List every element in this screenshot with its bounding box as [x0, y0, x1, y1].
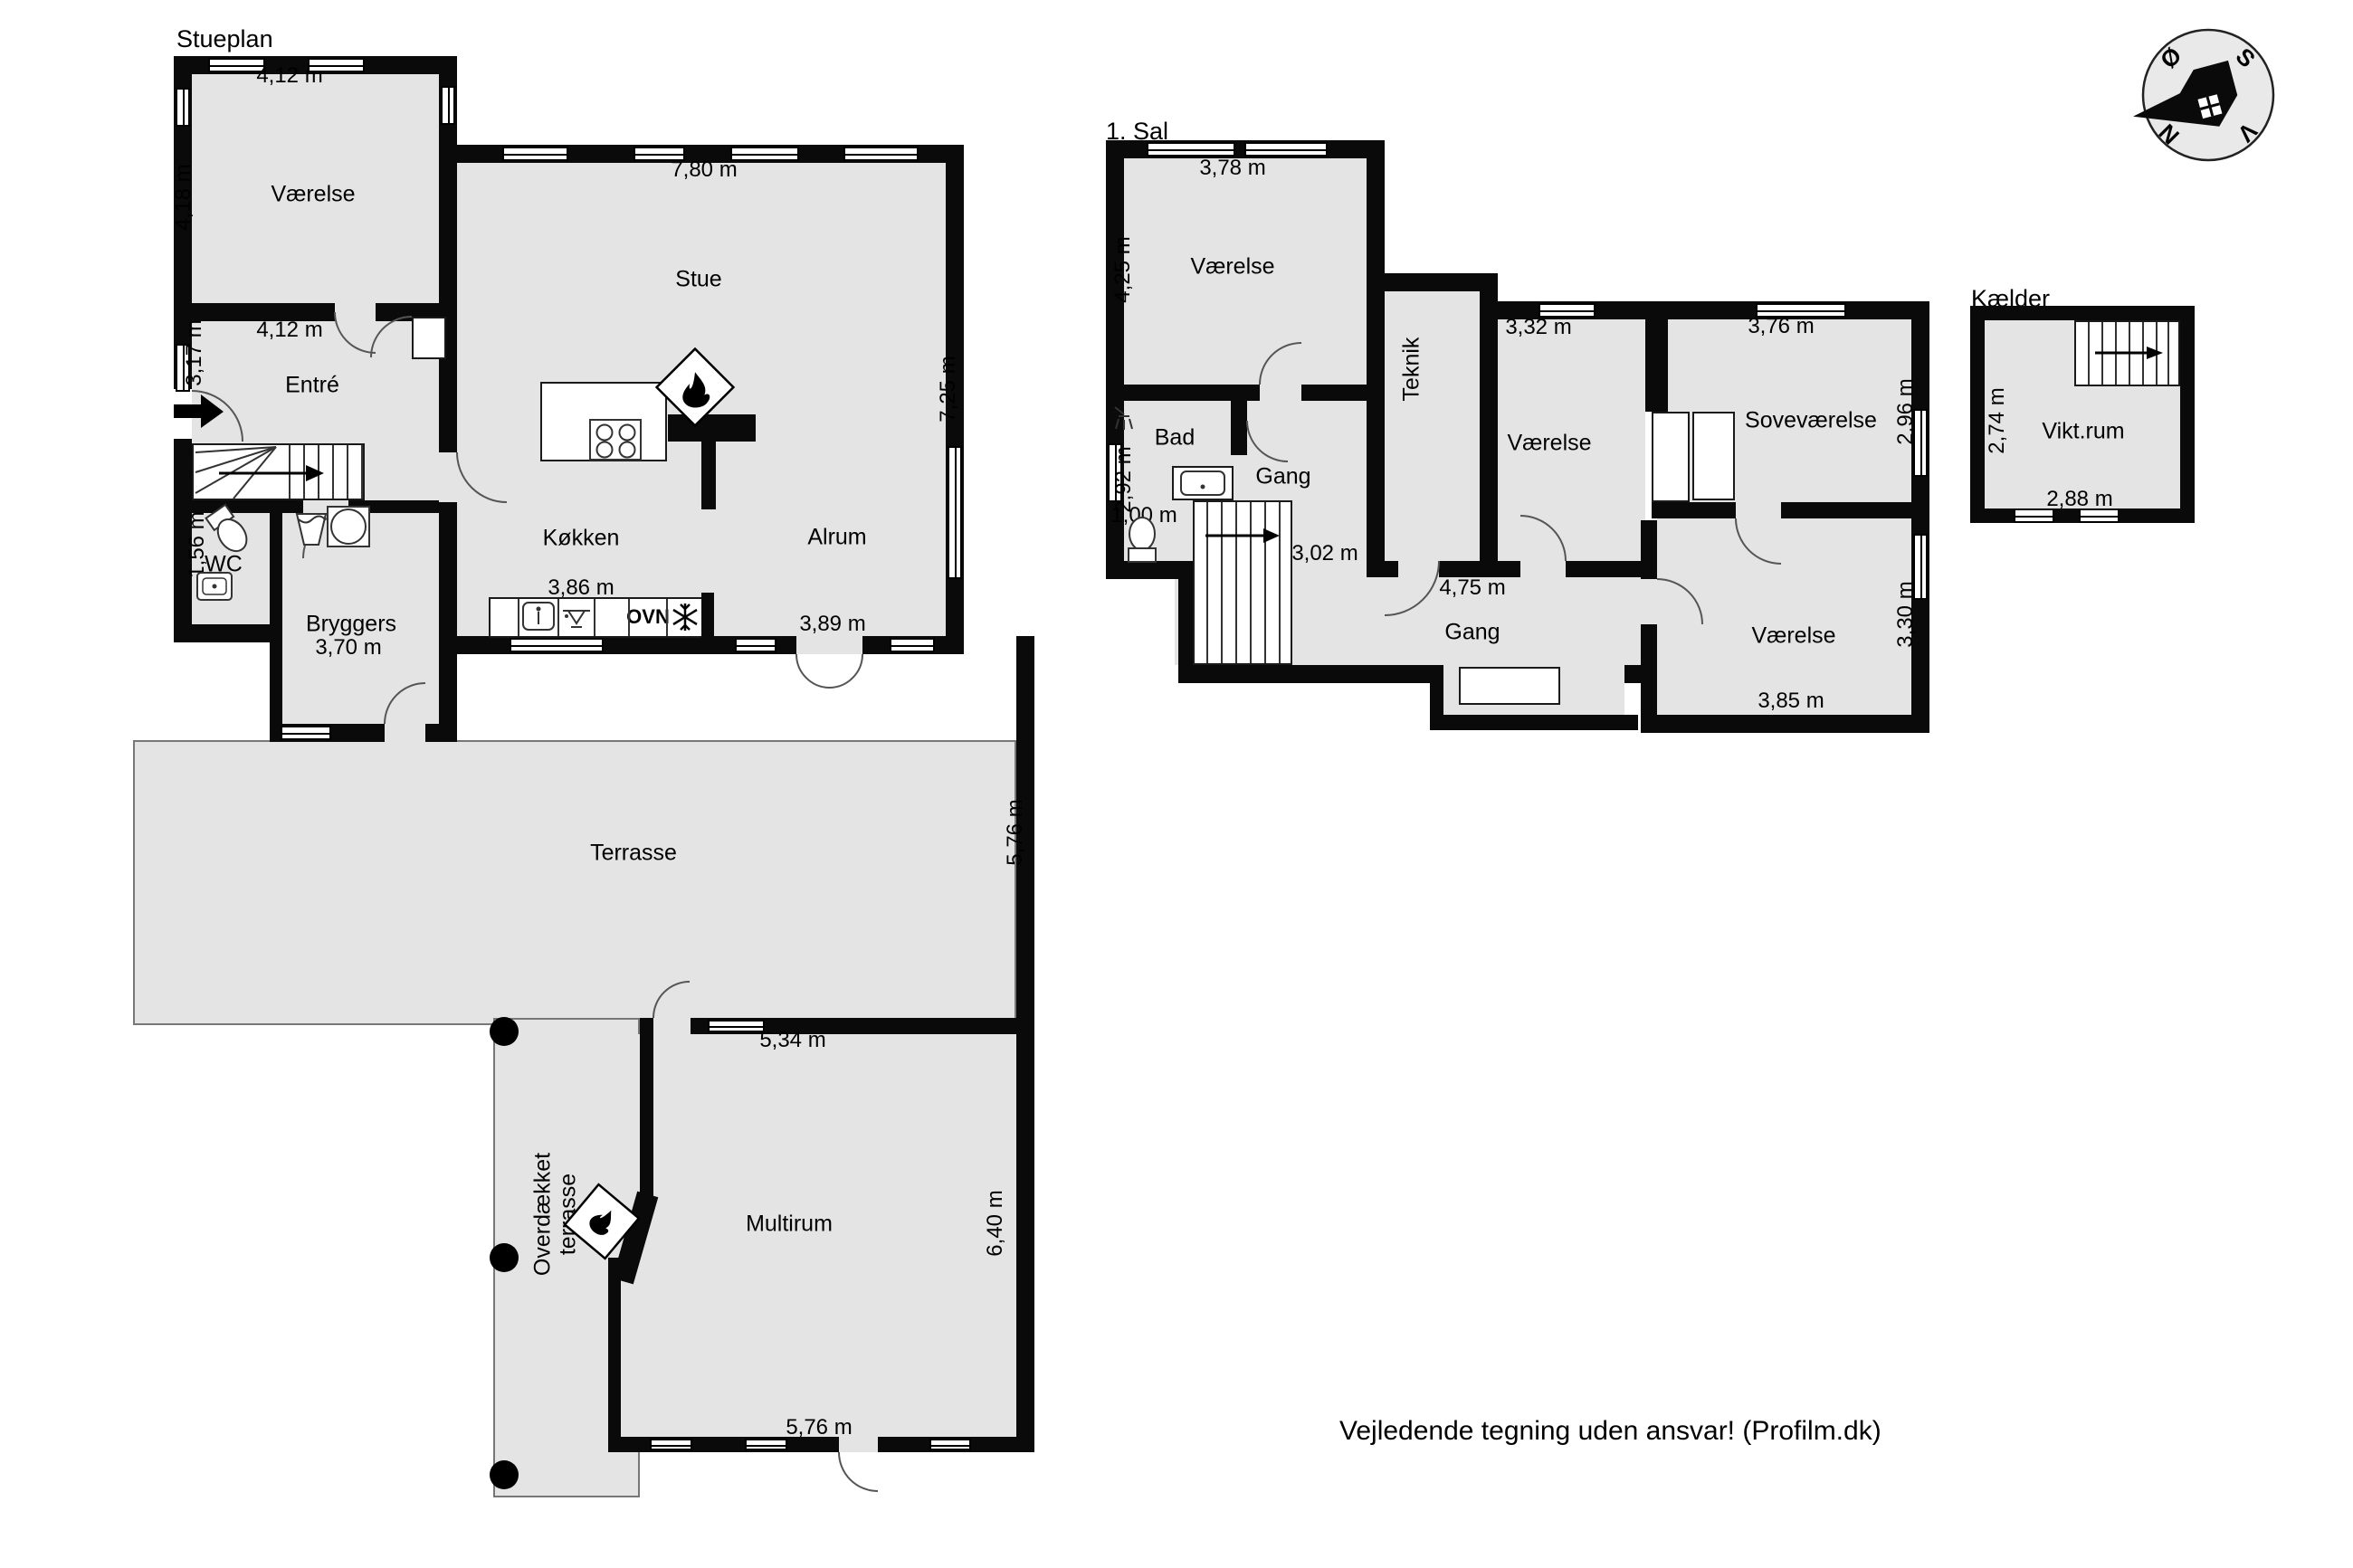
stair-arrow-icon [219, 465, 324, 481]
post-icon [490, 1017, 519, 1046]
entrance-arrow-icon [174, 394, 224, 428]
fireplace-icon [657, 349, 756, 509]
floorplan-canvas: Stueplan [0, 0, 2353, 1568]
laundry-sink-icon [297, 514, 326, 545]
door-arc [839, 1452, 878, 1491]
sink-icon [523, 603, 554, 630]
door-arcs-first [1247, 343, 1781, 624]
dishwasher-icon [563, 611, 590, 627]
washbasin-icon [1181, 471, 1224, 495]
snowflake-icon [673, 603, 697, 631]
door-arc [796, 654, 830, 688]
door-arcs-ground [192, 312, 878, 1491]
post-icon [490, 1460, 519, 1489]
door-arc [653, 982, 690, 1018]
door-arc [1657, 579, 1702, 624]
fixtures-layer [0, 0, 2353, 1568]
door-arc [1247, 421, 1288, 461]
door-arc [1260, 343, 1301, 385]
door-arc [385, 683, 425, 724]
shower-icon [1115, 407, 1132, 430]
door-arc [371, 317, 412, 357]
door-arc [1385, 561, 1439, 615]
washing-machine-icon [328, 507, 369, 546]
toilet-icon [205, 504, 252, 556]
door-arc [457, 452, 507, 502]
stove-icon [590, 420, 641, 460]
disclaimer-text: Vejledende tegning uden ansvar! (Profilm… [1339, 1416, 1881, 1447]
fireplace-icon [565, 1184, 658, 1284]
door-arc [1520, 516, 1566, 561]
door-arc [829, 654, 862, 688]
post-icon [490, 1243, 519, 1272]
stair-arrow-icon [1205, 528, 1280, 543]
door-arc [335, 312, 376, 353]
washbasin-icon [197, 573, 232, 600]
terrace-posts [490, 1017, 519, 1489]
toilet-icon [1129, 518, 1156, 562]
door-arc [1736, 518, 1781, 564]
stair-treads-first [1207, 502, 1280, 663]
